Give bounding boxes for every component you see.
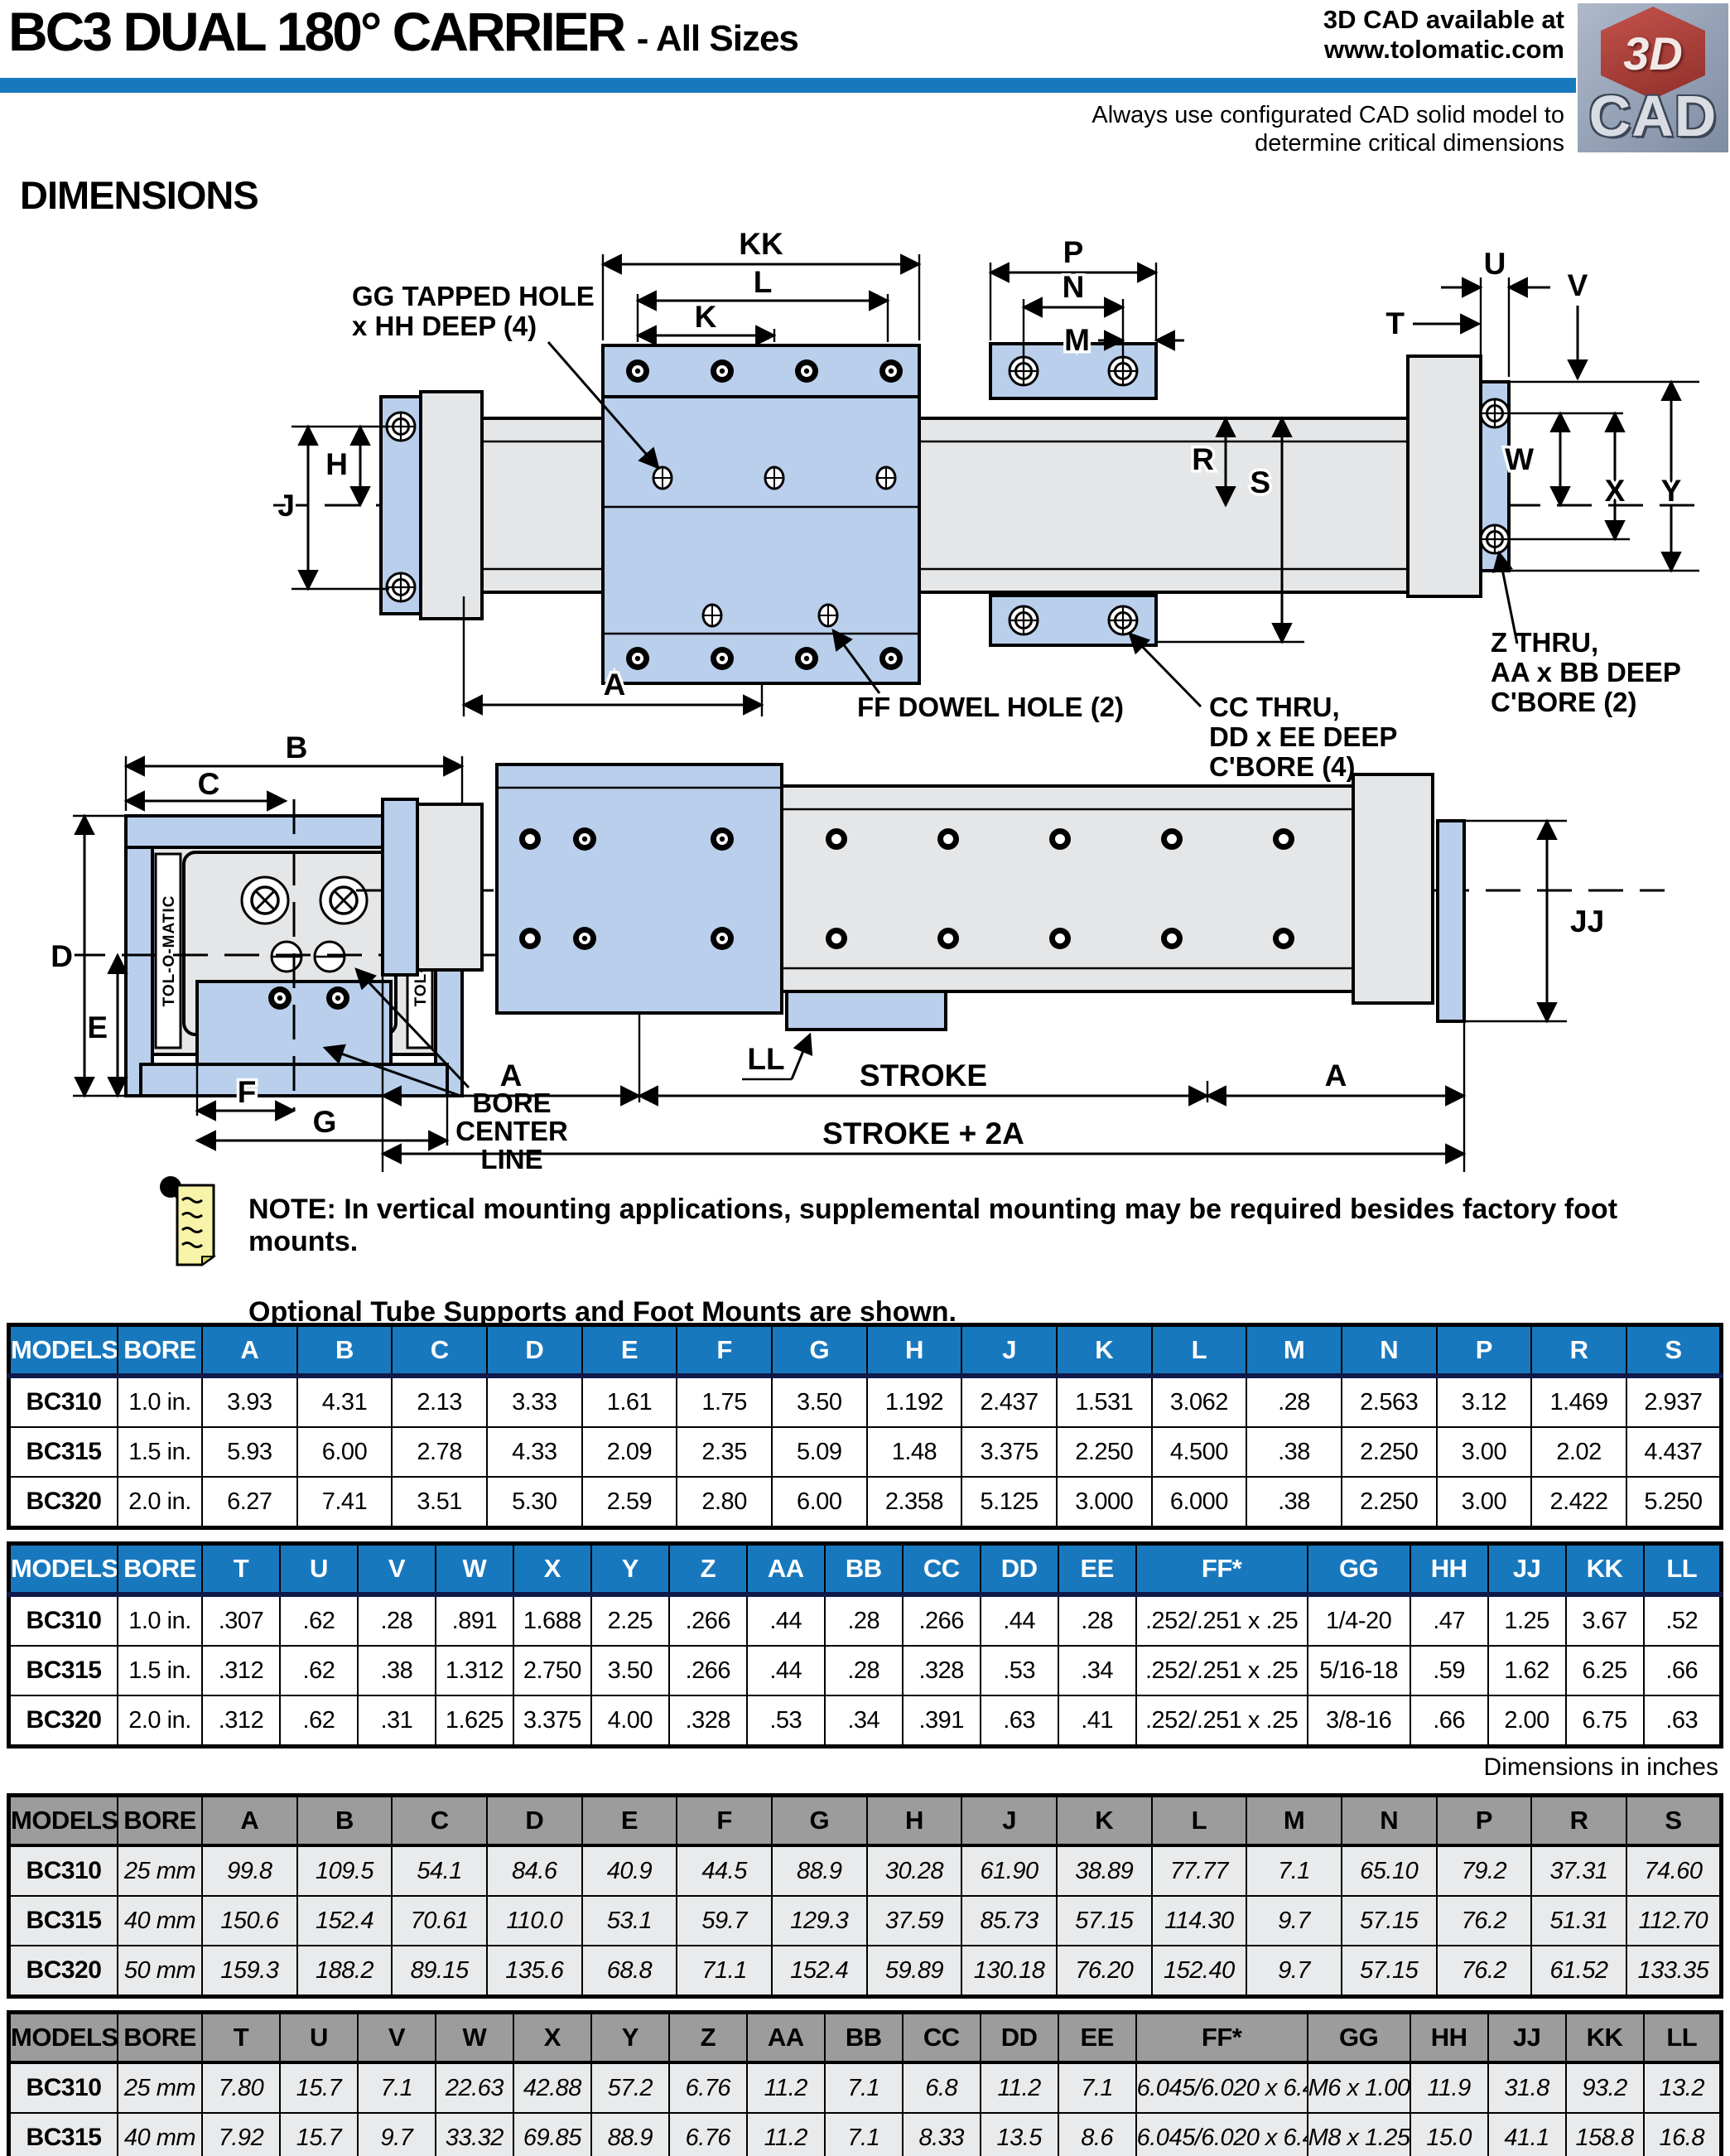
note-line2: Optional Tube Supports and Foot Mounts a… (248, 1258, 1730, 1329)
value-cell: .59 (1410, 1646, 1488, 1695)
value-cell: 88.9 (591, 2113, 669, 2156)
value-cell: 57.15 (1342, 1946, 1437, 1997)
value-cell: .34 (825, 1695, 903, 1747)
model-cell: BC310 (9, 1845, 118, 1896)
bore-cell: 1.0 in. (118, 1594, 202, 1646)
model-cell: BC310 (9, 1376, 118, 1427)
column-header: BORE (118, 1796, 202, 1846)
dim-S: S (1250, 465, 1270, 499)
column-header: JJ (1488, 1544, 1566, 1595)
callout-bore-line2: CENTER (455, 1116, 568, 1146)
dim-N: N (1063, 270, 1085, 304)
value-cell: .266 (669, 1594, 747, 1646)
value-cell: 88.9 (772, 1845, 867, 1896)
table-row: BC31025 mm7.8015.77.122.6342.8857.26.761… (9, 2062, 1722, 2113)
value-cell: 3.12 (1437, 1376, 1532, 1427)
value-cell: 11.9 (1410, 2062, 1488, 2113)
value-cell: 1.625 (436, 1695, 513, 1747)
bore-cell: 40 mm (118, 2113, 202, 2156)
dim-KK: KK (739, 227, 783, 261)
value-cell: .28 (358, 1594, 436, 1646)
value-cell: 13.2 (1644, 2062, 1722, 2113)
value-cell: 3.375 (961, 1427, 1057, 1477)
column-header: Y (591, 2013, 669, 2063)
value-cell: 89.15 (392, 1946, 487, 1997)
bore-cell: 1.5 in. (118, 1646, 202, 1695)
column-header: FF* (1136, 1544, 1308, 1595)
value-cell: 6.75 (1566, 1695, 1644, 1747)
value-cell: .34 (1058, 1646, 1136, 1695)
value-cell: 76.2 (1437, 1896, 1532, 1946)
column-header: HH (1410, 1544, 1488, 1595)
column-header: P (1437, 1325, 1532, 1377)
value-cell: 1.61 (582, 1376, 677, 1427)
value-cell: 1.192 (867, 1376, 962, 1427)
value-cell: 6.045/6.020 x 6.4 (1136, 2113, 1308, 2156)
value-cell: 2.250 (1057, 1427, 1152, 1477)
value-cell: 37.31 (1531, 1845, 1626, 1896)
callout-gg-line1: GG TAPPED HOLE (352, 281, 595, 311)
value-cell: 3.33 (487, 1376, 582, 1427)
value-cell: .266 (669, 1646, 747, 1695)
value-cell: .28 (825, 1594, 903, 1646)
value-cell: 1.75 (677, 1376, 772, 1427)
value-cell: 2.02 (1531, 1427, 1626, 1477)
value-cell: 3.67 (1566, 1594, 1644, 1646)
dim-E: E (87, 1010, 108, 1044)
column-header: U (280, 1544, 358, 1595)
value-cell: 3.50 (772, 1376, 867, 1427)
column-header: V (358, 2013, 436, 2063)
dim-R: R (1192, 442, 1214, 476)
table-row: BC3202.0 in.6.277.413.515.302.592.806.00… (9, 1477, 1722, 1528)
value-cell: 22.63 (436, 2062, 513, 2113)
value-cell: 68.8 (582, 1946, 677, 1997)
model-cell: BC320 (9, 1477, 118, 1528)
value-cell: 51.31 (1531, 1896, 1626, 1946)
value-cell: 99.8 (202, 1845, 297, 1896)
value-cell: 9.7 (1246, 1896, 1342, 1946)
value-cell: 1.688 (513, 1594, 591, 1646)
value-cell: 2.00 (1488, 1695, 1566, 1747)
value-cell: 3.51 (392, 1477, 487, 1528)
value-cell: 6.76 (669, 2062, 747, 2113)
value-cell: 6.00 (297, 1427, 393, 1477)
value-cell: 130.18 (961, 1946, 1057, 1997)
dim-A-side: A (604, 668, 626, 702)
value-cell: 33.32 (436, 2113, 513, 2156)
column-header: C (392, 1796, 487, 1846)
value-cell: 84.6 (487, 1845, 582, 1896)
column-header: D (487, 1796, 582, 1846)
value-cell: .28 (825, 1646, 903, 1695)
value-cell: 150.6 (202, 1896, 297, 1946)
column-header: G (772, 1796, 867, 1846)
value-cell: .44 (747, 1594, 825, 1646)
column-header: R (1531, 1796, 1626, 1846)
value-cell: 2.13 (392, 1376, 487, 1427)
value-cell: 16.8 (1644, 2113, 1722, 2156)
value-cell: 6.045/6.020 x 6.4 (1136, 2062, 1308, 2113)
value-cell: 4.437 (1626, 1427, 1722, 1477)
top-view: JJ LL A STROKE A STROKE + 2A (356, 764, 1665, 1172)
value-cell: .28 (1246, 1376, 1342, 1427)
table-row: BC31540 mm150.6152.470.61110.053.159.712… (9, 1896, 1722, 1946)
column-header: S (1626, 1325, 1722, 1377)
value-cell: 93.2 (1566, 2062, 1644, 2113)
value-cell: 11.2 (981, 2062, 1058, 2113)
value-cell: 57.15 (1057, 1896, 1152, 1946)
column-header: L (1152, 1796, 1247, 1846)
value-cell: 1.62 (1488, 1646, 1566, 1695)
value-cell: M6 x 1.00 (1308, 2062, 1410, 2113)
value-cell: 3.00 (1437, 1477, 1532, 1528)
value-cell: 59.7 (677, 1896, 772, 1946)
value-cell: 74.60 (1626, 1845, 1722, 1896)
value-cell: 159.3 (202, 1946, 297, 1997)
value-cell: .31 (358, 1695, 436, 1747)
model-cell: BC315 (9, 1646, 118, 1695)
column-header: C (392, 1325, 487, 1377)
table-row: BC31025 mm99.8109.554.184.640.944.588.93… (9, 1845, 1722, 1896)
value-cell: 188.2 (297, 1946, 393, 1997)
callout-ff: FF DOWEL HOLE (2) (857, 692, 1124, 722)
value-cell: .62 (280, 1646, 358, 1695)
model-cell: BC310 (9, 2062, 118, 2113)
callout-gg-line2: x HH DEEP (4) (352, 311, 537, 341)
column-header: FF* (1136, 2013, 1308, 2063)
column-header: Y (591, 1544, 669, 1595)
value-cell: 1.25 (1488, 1594, 1566, 1646)
column-header: M (1246, 1796, 1342, 1846)
value-cell: 2.750 (513, 1646, 591, 1695)
column-header: H (867, 1325, 962, 1377)
value-cell: 152.4 (772, 1946, 867, 1997)
value-cell: .63 (1644, 1695, 1722, 1747)
model-cell: BC315 (9, 1427, 118, 1477)
column-header: T (202, 2013, 280, 2063)
dim-V: V (1568, 268, 1588, 302)
value-cell: 37.59 (867, 1896, 962, 1946)
value-cell: 4.33 (487, 1427, 582, 1477)
value-cell: 7.1 (358, 2062, 436, 2113)
column-header: W (436, 2013, 513, 2063)
inches-unit-note: Dimensions in inches (7, 1753, 1718, 1782)
column-header: B (297, 1325, 393, 1377)
value-cell: 7.41 (297, 1477, 393, 1528)
bore-cell: 25 mm (118, 1845, 202, 1896)
value-cell: 1/4-20 (1308, 1594, 1410, 1646)
table-mm-a-s: MODELSBOREABCDEFGHJKLMNPRSBC31025 mm99.8… (7, 1793, 1723, 1999)
callout-z-line3: C'BORE (2) (1491, 687, 1637, 717)
value-cell: .891 (436, 1594, 513, 1646)
value-cell: .307 (202, 1594, 280, 1646)
value-cell: 3.062 (1152, 1376, 1247, 1427)
value-cell: .53 (747, 1695, 825, 1747)
column-header: A (202, 1325, 297, 1377)
callout-z-line2: AA x BB DEEP (1491, 657, 1681, 687)
table-row: BC3101.0 in..307.62.28.8911.6882.25.266.… (9, 1594, 1722, 1646)
column-header: AA (747, 2013, 825, 2063)
side-view: KK L K P N M U T V (273, 227, 1699, 782)
value-cell: 44.5 (677, 1845, 772, 1896)
bore-cell: 1.0 in. (118, 1376, 202, 1427)
value-cell: 15.7 (280, 2062, 358, 2113)
callout-cc-line2: DD x EE DEEP (1209, 721, 1397, 752)
value-cell: .38 (1246, 1477, 1342, 1528)
note-block: NOTE: In vertical mounting applications,… (157, 1180, 1730, 1311)
value-cell: 2.437 (961, 1376, 1057, 1427)
value-cell: 135.6 (487, 1946, 582, 1997)
value-cell: .53 (981, 1646, 1058, 1695)
model-cell: BC320 (9, 1946, 118, 1997)
dim-A-left: A (500, 1059, 523, 1092)
value-cell: .38 (1246, 1427, 1342, 1477)
page-header: BC3 DUAL 180° CARRIER - All Sizes 3D CAD… (0, 0, 1730, 159)
title-main: BC3 DUAL 180° CARRIER (8, 1, 624, 62)
value-cell: 6.00 (772, 1477, 867, 1528)
column-header: BORE (118, 2013, 202, 2063)
column-header: MODELS (9, 1325, 118, 1377)
value-cell: 7.1 (825, 2062, 903, 2113)
value-cell: 38.89 (1057, 1845, 1152, 1896)
value-cell: 2.09 (582, 1427, 677, 1477)
column-header: B (297, 1796, 393, 1846)
note-line1: NOTE: In vertical mounting applications,… (248, 1180, 1730, 1258)
dim-LL: LL (747, 1042, 784, 1076)
value-cell: .52 (1644, 1594, 1722, 1646)
column-header: MODELS (9, 1796, 118, 1846)
page-title: BC3 DUAL 180° CARRIER - All Sizes (8, 0, 798, 63)
value-cell: 71.1 (677, 1946, 772, 1997)
dim-W: W (1505, 442, 1534, 476)
value-cell: 133.35 (1626, 1946, 1722, 1997)
value-cell: .62 (280, 1594, 358, 1646)
column-header: Z (669, 2013, 747, 2063)
column-header: W (436, 1544, 513, 1595)
value-cell: 13.5 (981, 2113, 1058, 2156)
cad-warning-text: Always use configurated CAD solid model … (1051, 101, 1564, 157)
value-cell: 2.937 (1626, 1376, 1722, 1427)
table-row: BC3151.5 in.5.936.002.784.332.092.355.09… (9, 1427, 1722, 1477)
value-cell: 9.7 (1246, 1946, 1342, 1997)
value-cell: 11.2 (747, 2113, 825, 2156)
column-header: N (1342, 1796, 1437, 1846)
dim-T: T (1385, 306, 1405, 340)
column-header: F (677, 1325, 772, 1377)
value-cell: .312 (202, 1695, 280, 1747)
note-icon (157, 1175, 227, 1271)
column-header: J (961, 1325, 1057, 1377)
column-header: A (202, 1796, 297, 1846)
value-cell: .62 (280, 1695, 358, 1747)
column-header: MODELS (9, 1544, 118, 1595)
column-header: L (1152, 1325, 1247, 1377)
value-cell: 2.358 (867, 1477, 962, 1528)
column-header: E (582, 1796, 677, 1846)
value-cell: 5.09 (772, 1427, 867, 1477)
callout-cc-line1: CC THRU, (1209, 692, 1340, 722)
column-header: T (202, 1544, 280, 1595)
value-cell: 3.000 (1057, 1477, 1152, 1528)
dimension-tables: MODELSBOREABCDEFGHJKLMNPRSBC3101.0 in.3.… (7, 1323, 1723, 2156)
column-header: CC (903, 1544, 981, 1595)
value-cell: 152.4 (297, 1896, 393, 1946)
value-cell: 5.125 (961, 1477, 1057, 1528)
value-cell: 41.1 (1488, 2113, 1566, 2156)
tolomatic-url[interactable]: www.tolomatic.com (1323, 35, 1564, 65)
dim-A-right: A (1325, 1059, 1347, 1092)
dimensions-heading: DIMENSIONS (20, 172, 1730, 218)
dim-C: C (198, 767, 220, 801)
note-text: NOTE: In vertical mounting applications,… (248, 1180, 1730, 1329)
table-inches-t-ll: MODELSBORETUVWXYZAABBCCDDEEFF*GGHHJJKKLL… (7, 1541, 1723, 1748)
table-row: BC3101.0 in.3.934.312.133.331.611.753.50… (9, 1376, 1722, 1427)
value-cell: 53.1 (582, 1896, 677, 1946)
column-header: GG (1308, 1544, 1410, 1595)
bore-cell: 2.0 in. (118, 1695, 202, 1747)
value-cell: .312 (202, 1646, 280, 1695)
value-cell: 6.76 (669, 2113, 747, 2156)
3d-cad-logo-icon: 3D CAD (1578, 3, 1728, 152)
value-cell: 85.73 (961, 1896, 1057, 1946)
value-cell: .47 (1410, 1594, 1488, 1646)
column-header: JJ (1488, 2013, 1566, 2063)
column-header: GG (1308, 2013, 1410, 2063)
dim-G: G (313, 1105, 337, 1139)
column-header: AA (747, 1544, 825, 1595)
value-cell: 57.2 (591, 2062, 669, 2113)
value-cell: .252/.251 x .25 (1136, 1695, 1308, 1747)
column-header: K (1057, 1796, 1152, 1846)
value-cell: 4.500 (1152, 1427, 1247, 1477)
value-cell: 15.7 (280, 2113, 358, 2156)
value-cell: .28 (1058, 1594, 1136, 1646)
value-cell: 112.70 (1626, 1896, 1722, 1946)
value-cell: .328 (903, 1646, 981, 1695)
value-cell: 40.9 (582, 1845, 677, 1896)
value-cell: 7.1 (825, 2113, 903, 2156)
value-cell: 31.8 (1488, 2062, 1566, 2113)
value-cell: 2.563 (1342, 1376, 1437, 1427)
column-header: V (358, 1544, 436, 1595)
value-cell: .63 (981, 1695, 1058, 1747)
value-cell: 15.0 (1410, 2113, 1488, 2156)
column-header: H (867, 1796, 962, 1846)
value-cell: 6.25 (1566, 1646, 1644, 1695)
bore-cell: 40 mm (118, 1896, 202, 1946)
dimension-drawing: KK L K P N M U T V (0, 219, 1730, 1172)
value-cell: 11.2 (747, 2062, 825, 2113)
value-cell: 1.312 (436, 1646, 513, 1695)
value-cell: 6.000 (1152, 1477, 1247, 1528)
value-cell: 54.1 (392, 1845, 487, 1896)
value-cell: .391 (903, 1695, 981, 1747)
value-cell: 8.33 (903, 2113, 981, 2156)
value-cell: 1.469 (1531, 1376, 1626, 1427)
value-cell: 129.3 (772, 1896, 867, 1946)
dim-D: D (51, 939, 73, 973)
value-cell: 2.422 (1531, 1477, 1626, 1528)
value-cell: 77.77 (1152, 1845, 1247, 1896)
table-row: BC3151.5 in..312.62.381.3122.7503.50.266… (9, 1646, 1722, 1695)
table-mm-t-ll: MODELSBORETUVWXYZAABBCCDDEEFF*GGHHJJKKLL… (7, 2010, 1723, 2156)
value-cell: 2.35 (677, 1427, 772, 1477)
dim-P: P (1063, 235, 1084, 269)
value-cell: 59.89 (867, 1946, 962, 1997)
value-cell: 158.8 (1566, 2113, 1644, 2156)
value-cell: 3.93 (202, 1376, 297, 1427)
value-cell: 9.7 (358, 2113, 436, 2156)
value-cell: 114.30 (1152, 1896, 1247, 1946)
callout-cc-line3: C'BORE (4) (1209, 751, 1356, 782)
value-cell: 3.00 (1437, 1427, 1532, 1477)
value-cell: 7.92 (202, 2113, 280, 2156)
title-sub: - All Sizes (637, 18, 798, 59)
bore-cell: 1.5 in. (118, 1427, 202, 1477)
column-header: EE (1058, 2013, 1136, 2063)
value-cell: 109.5 (297, 1845, 393, 1896)
column-header: K (1057, 1325, 1152, 1377)
value-cell: 5.250 (1626, 1477, 1722, 1528)
value-cell: 57.15 (1342, 1896, 1437, 1946)
value-cell: 61.90 (961, 1845, 1057, 1896)
value-cell: .328 (669, 1695, 747, 1747)
value-cell: 7.1 (1058, 2062, 1136, 2113)
value-cell: 2.80 (677, 1477, 772, 1528)
table-row: BC32050 mm159.3188.289.15135.668.871.115… (9, 1946, 1722, 1997)
column-header: DD (981, 1544, 1058, 1595)
value-cell: 69.85 (513, 2113, 591, 2156)
table-inches-a-s: MODELSBOREABCDEFGHJKLMNPRSBC3101.0 in.3.… (7, 1323, 1723, 1530)
column-header: BB (825, 2013, 903, 2063)
callout-z-line1: Z THRU, (1491, 627, 1598, 658)
column-header: M (1246, 1325, 1342, 1377)
value-cell: 3/8-16 (1308, 1695, 1410, 1747)
value-cell: 6.8 (903, 2062, 981, 2113)
table-row: BC31540 mm7.9215.79.733.3269.8588.96.761… (9, 2113, 1722, 2156)
dim-JJ: JJ (1570, 904, 1604, 938)
value-cell: 5.30 (487, 1477, 582, 1528)
value-cell: 2.250 (1342, 1427, 1437, 1477)
column-header: G (772, 1325, 867, 1377)
value-cell: 42.88 (513, 2062, 591, 2113)
value-cell: .252/.251 x .25 (1136, 1646, 1308, 1695)
value-cell: 7.1 (1246, 1845, 1342, 1896)
value-cell: 65.10 (1342, 1845, 1437, 1896)
column-header: LL (1644, 2013, 1722, 2063)
column-header: N (1342, 1325, 1437, 1377)
value-cell: 2.59 (582, 1477, 677, 1528)
model-cell: BC315 (9, 1896, 118, 1946)
cad-logo-word: CAD (1578, 83, 1728, 149)
cad-availability: 3D CAD available at www.tolomatic.com (1323, 5, 1564, 65)
column-header: MODELS (9, 2013, 118, 2063)
value-cell: 152.40 (1152, 1946, 1247, 1997)
column-header: D (487, 1325, 582, 1377)
dim-J: J (277, 489, 295, 523)
value-cell: M8 x 1.25 (1308, 2113, 1410, 2156)
column-header: X (513, 2013, 591, 2063)
column-header: S (1626, 1796, 1722, 1846)
value-cell: 79.2 (1437, 1845, 1532, 1896)
cad-availability-line1: 3D CAD available at (1323, 5, 1564, 35)
model-cell: BC320 (9, 1695, 118, 1747)
value-cell: .252/.251 x .25 (1136, 1594, 1308, 1646)
value-cell: 4.31 (297, 1376, 393, 1427)
column-header: HH (1410, 2013, 1488, 2063)
value-cell: 76.20 (1057, 1946, 1152, 1997)
